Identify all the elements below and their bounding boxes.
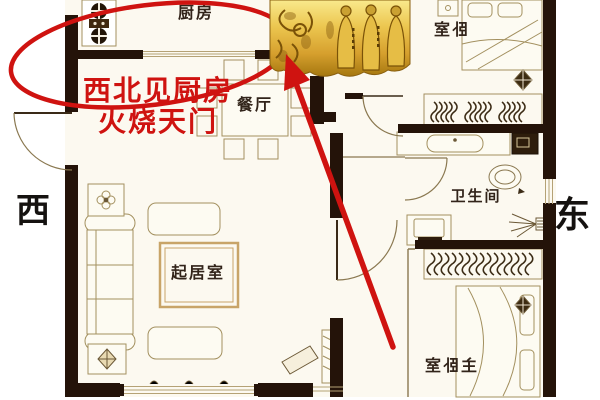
- stove-icon: [82, 0, 116, 46]
- compass-west-label: 西: [16, 191, 50, 231]
- nightstand-icon: [438, 0, 458, 16]
- compass-east-label: 东: [554, 195, 590, 236]
- room-label-master-bedroom: 主卧室: [423, 356, 477, 375]
- sofa-icon: [85, 214, 135, 350]
- loveseat-icon: [148, 203, 220, 235]
- room-label-kitchen: 厨房: [178, 3, 214, 22]
- room-label-bathroom: 卫生间: [450, 187, 501, 205]
- room-label-dining: 餐厅: [236, 95, 273, 114]
- warning-text-line1: 西北见厨房: [83, 74, 233, 107]
- bed-icon: [462, 0, 542, 70]
- fengshui-floorplan: 厨房 餐厅 卧室 卫生间 起居室 主卧室: [0, 0, 600, 400]
- loveseat-icon: [148, 327, 222, 359]
- room-label-bedroom: 卧室: [432, 20, 468, 39]
- flower-table-icon: [88, 184, 124, 216]
- star-table-icon: [88, 344, 126, 374]
- room-label-living-room: 起居室: [170, 263, 225, 282]
- floorplan-svg: 厨房 餐厅 卧室 卫生间 起居室 主卧室: [0, 0, 600, 400]
- washer-icon: [512, 133, 538, 154]
- warning-text-line2: 火烧天门: [98, 105, 218, 138]
